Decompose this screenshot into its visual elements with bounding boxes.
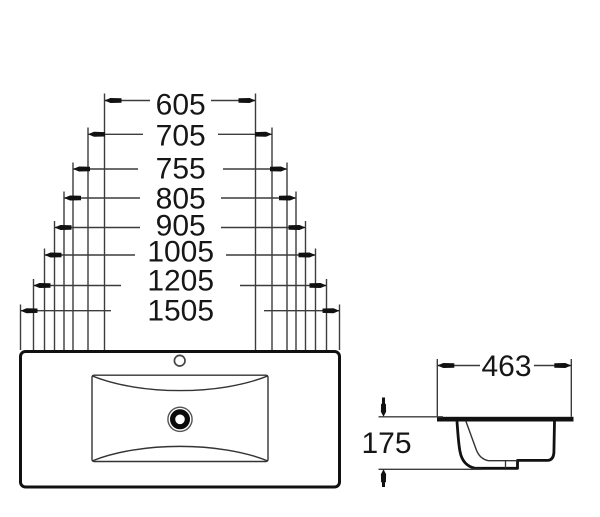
svg-text:1205: 1205: [147, 265, 214, 298]
svg-text:605: 605: [156, 89, 206, 122]
svg-text:705: 705: [156, 120, 206, 153]
svg-text:755: 755: [156, 153, 206, 186]
svg-text:1505: 1505: [147, 295, 214, 328]
svg-text:175: 175: [361, 427, 411, 460]
svg-text:463: 463: [481, 350, 531, 383]
